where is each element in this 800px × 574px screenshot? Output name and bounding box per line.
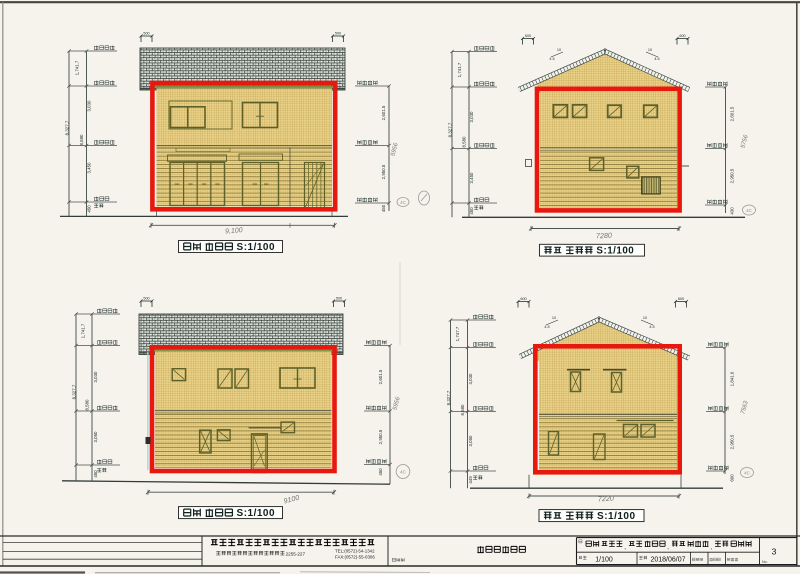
svg-text:450: 450 <box>87 205 92 213</box>
svg-text:1,841.6: 1,841.6 <box>729 371 734 386</box>
svg-text:8,327.7: 8,327.7 <box>447 122 452 137</box>
svg-text:4.5: 4.5 <box>654 57 659 61</box>
svg-text:450: 450 <box>469 207 474 215</box>
svg-text:449: 449 <box>468 476 473 484</box>
svg-text:8,580: 8,580 <box>79 134 84 146</box>
svg-text:600: 600 <box>520 297 526 301</box>
svg-text:4C: 4C <box>400 200 407 205</box>
svg-text:3,450: 3,450 <box>469 172 474 184</box>
svg-text:10: 10 <box>557 48 561 52</box>
svg-text:3,030: 3,030 <box>93 371 98 383</box>
svg-text:3,050: 3,050 <box>468 435 473 447</box>
svg-text:10: 10 <box>552 316 556 320</box>
svg-text:500: 500 <box>336 297 342 301</box>
svg-text:500: 500 <box>143 32 149 36</box>
svg-text:3,030: 3,030 <box>87 100 92 112</box>
svg-text:4.5: 4.5 <box>549 57 554 61</box>
svg-text:S:1/100: S:1/100 <box>597 511 636 522</box>
svg-text:2,950.5: 2,950.5 <box>381 164 386 179</box>
svg-text:450: 450 <box>381 204 386 212</box>
svg-text:600: 600 <box>679 34 685 38</box>
svg-text:10: 10 <box>643 316 647 320</box>
svg-text:4C: 4C <box>746 208 753 213</box>
svg-text:2,601.5: 2,601.5 <box>381 105 386 120</box>
svg-text:450: 450 <box>93 470 98 478</box>
svg-text:3,030: 3,030 <box>468 373 473 385</box>
svg-text:500: 500 <box>335 32 341 36</box>
svg-text:1,741.7: 1,741.7 <box>75 60 80 75</box>
svg-text:4.5: 4.5 <box>649 325 654 329</box>
svg-text:7220: 7220 <box>598 493 615 503</box>
svg-text:8,327.7: 8,327.7 <box>71 384 76 399</box>
svg-text:2,950.5: 2,950.5 <box>729 434 734 449</box>
svg-text:8,327.7: 8,327.7 <box>64 120 69 135</box>
svg-text:1,741.7: 1,741.7 <box>81 323 86 338</box>
svg-text:2255-227: 2255-227 <box>286 551 306 556</box>
svg-text:8,580: 8,580 <box>462 136 467 148</box>
svg-text:4C: 4C <box>744 470 751 475</box>
svg-text:8,327.7: 8,327.7 <box>446 390 451 405</box>
svg-text:1,747.7: 1,747.7 <box>455 326 460 341</box>
svg-text:500: 500 <box>143 297 149 301</box>
svg-text:S:1/100: S:1/100 <box>596 245 634 256</box>
svg-text:2,601.5: 2,601.5 <box>378 369 383 384</box>
svg-text:10: 10 <box>648 48 652 52</box>
svg-text:3,450: 3,450 <box>87 162 92 174</box>
svg-text:600: 600 <box>729 474 734 482</box>
svg-text:3,030: 3,030 <box>469 111 474 123</box>
svg-text:1/100: 1/100 <box>595 556 613 563</box>
svg-text:8,580: 8,580 <box>85 399 90 411</box>
svg-text:TEL:(0572)-54-1342: TEL:(0572)-54-1342 <box>335 549 375 554</box>
svg-text:4.5: 4.5 <box>544 325 549 329</box>
svg-text:4C: 4C <box>400 469 407 474</box>
svg-text:2,950.5: 2,950.5 <box>378 429 383 444</box>
svg-text:FAX:(0572)-55-0306: FAX:(0572)-55-0306 <box>335 555 375 560</box>
svg-text:600: 600 <box>678 297 684 301</box>
svg-text:S:1/100: S:1/100 <box>237 242 276 253</box>
svg-text:S:1/100: S:1/100 <box>237 508 276 519</box>
svg-text:2018/06/07: 2018/06/07 <box>650 556 685 563</box>
svg-text:1,741.7: 1,741.7 <box>457 62 462 77</box>
svg-text:450: 450 <box>378 468 383 476</box>
svg-text:3,050: 3,050 <box>93 431 98 443</box>
svg-text:No.: No. <box>762 560 768 564</box>
svg-text:2,601.5: 2,601.5 <box>730 106 735 121</box>
svg-text:7280: 7280 <box>596 231 612 241</box>
svg-text:2,950.5: 2,950.5 <box>730 168 735 183</box>
svg-text:600: 600 <box>525 34 531 38</box>
svg-text:3: 3 <box>772 547 777 557</box>
svg-text:8,580: 8,580 <box>460 404 465 416</box>
svg-text:430: 430 <box>730 207 735 215</box>
